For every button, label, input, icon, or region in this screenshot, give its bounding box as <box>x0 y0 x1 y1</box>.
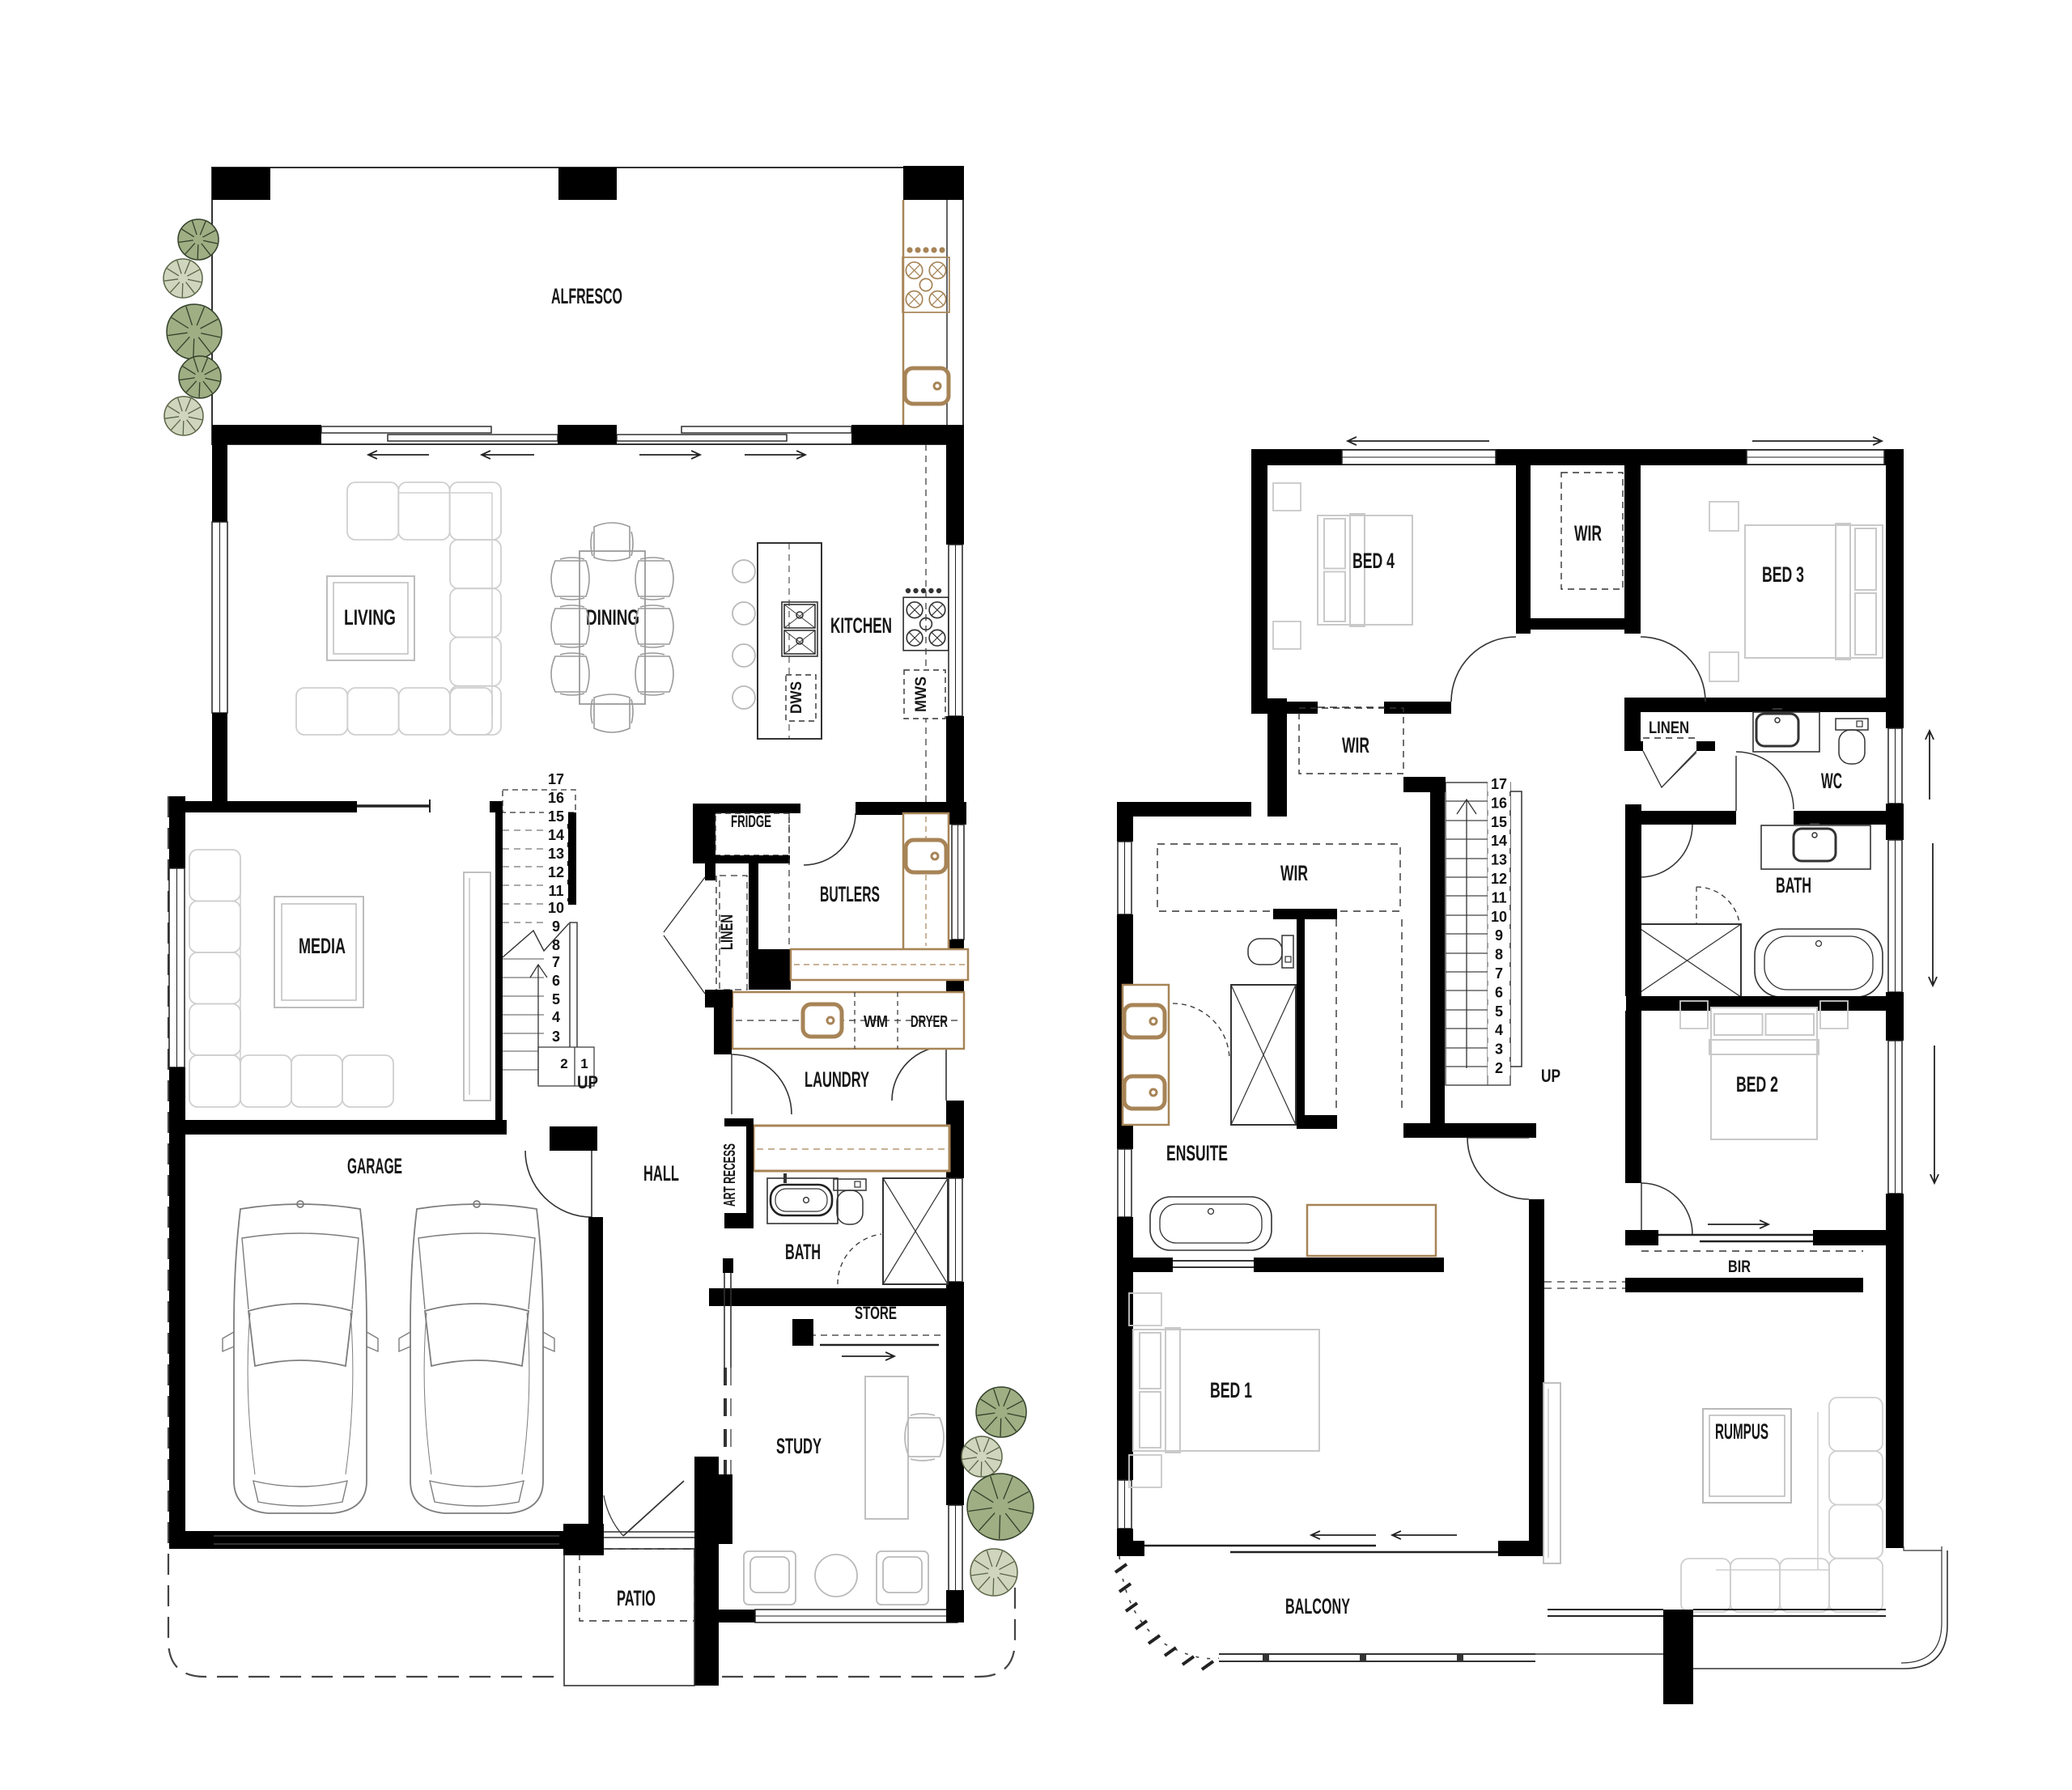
svg-text:BED 4: BED 4 <box>1352 549 1395 573</box>
svg-text:11: 11 <box>548 883 563 899</box>
svg-text:ART RECESS: ART RECESS <box>721 1143 739 1207</box>
svg-text:BIR: BIR <box>1728 1258 1751 1276</box>
svg-text:HALL: HALL <box>643 1161 679 1186</box>
svg-text:UP: UP <box>577 1072 598 1092</box>
svg-text:6: 6 <box>552 973 560 989</box>
svg-text:12: 12 <box>548 864 564 880</box>
svg-text:17: 17 <box>548 771 564 787</box>
svg-text:STUDY: STUDY <box>776 1434 822 1458</box>
svg-text:BATH: BATH <box>1776 873 1811 897</box>
svg-text:BED 2: BED 2 <box>1736 1072 1778 1096</box>
svg-text:17: 17 <box>1491 776 1507 792</box>
svg-text:16: 16 <box>1491 795 1507 811</box>
svg-text:MWS: MWS <box>913 677 930 712</box>
svg-text:8: 8 <box>552 937 560 953</box>
svg-text:7: 7 <box>1495 965 1503 982</box>
svg-text:4: 4 <box>552 1009 560 1025</box>
svg-text:DWS: DWS <box>788 681 805 714</box>
svg-text:DRYER: DRYER <box>911 1013 948 1031</box>
svg-text:9: 9 <box>1495 927 1503 944</box>
svg-text:BATH: BATH <box>785 1240 821 1264</box>
svg-text:UP: UP <box>1541 1066 1560 1086</box>
svg-text:10: 10 <box>1491 909 1507 925</box>
svg-text:FRIDGE: FRIDGE <box>731 812 771 831</box>
svg-text:9: 9 <box>552 918 560 935</box>
svg-text:3: 3 <box>552 1029 560 1045</box>
svg-text:7: 7 <box>552 954 560 970</box>
svg-text:LINEN: LINEN <box>718 914 737 950</box>
svg-text:16: 16 <box>548 790 564 806</box>
svg-text:RUMPUS: RUMPUS <box>1715 1419 1768 1444</box>
svg-text:2: 2 <box>1495 1060 1503 1076</box>
svg-text:8: 8 <box>1495 947 1503 963</box>
svg-text:LIVING: LIVING <box>344 605 396 630</box>
svg-text:WC: WC <box>1821 769 1842 793</box>
svg-text:BED 3: BED 3 <box>1762 562 1804 587</box>
svg-text:KITCHEN: KITCHEN <box>830 613 892 638</box>
svg-text:11: 11 <box>1491 889 1506 906</box>
svg-text:BUTLERS: BUTLERS <box>820 882 880 906</box>
svg-text:6: 6 <box>1495 984 1503 1000</box>
svg-text:5: 5 <box>552 991 560 1007</box>
svg-text:13: 13 <box>548 846 564 862</box>
svg-text:MEDIA: MEDIA <box>299 934 346 958</box>
svg-text:1: 1 <box>580 1056 588 1071</box>
svg-text:WM: WM <box>864 1013 888 1031</box>
svg-text:12: 12 <box>1491 871 1507 887</box>
svg-text:ENSUITE: ENSUITE <box>1166 1141 1228 1165</box>
svg-text:PATIO: PATIO <box>617 1586 656 1610</box>
svg-text:ALFRESCO: ALFRESCO <box>551 284 622 308</box>
svg-text:WIR: WIR <box>1342 733 1369 757</box>
svg-text:14: 14 <box>1491 833 1507 849</box>
svg-text:BED 1: BED 1 <box>1210 1378 1252 1402</box>
svg-text:LINEN: LINEN <box>1649 719 1689 737</box>
svg-text:14: 14 <box>548 827 564 843</box>
svg-text:WIR: WIR <box>1574 521 1602 545</box>
svg-text:13: 13 <box>1491 852 1507 868</box>
svg-text:STORE: STORE <box>855 1303 897 1323</box>
svg-text:4: 4 <box>1495 1022 1503 1038</box>
svg-text:5: 5 <box>1495 1003 1503 1020</box>
svg-text:BALCONY: BALCONY <box>1285 1594 1350 1618</box>
svg-text:2: 2 <box>560 1056 567 1071</box>
svg-text:15: 15 <box>548 808 564 825</box>
svg-text:WIR: WIR <box>1280 861 1308 885</box>
svg-text:DINING: DINING <box>586 605 639 630</box>
svg-text:15: 15 <box>1491 814 1507 830</box>
svg-text:3: 3 <box>1495 1041 1503 1058</box>
svg-text:10: 10 <box>548 900 564 916</box>
svg-text:GARAGE: GARAGE <box>347 1154 402 1178</box>
svg-text:LAUNDRY: LAUNDRY <box>805 1067 869 1092</box>
